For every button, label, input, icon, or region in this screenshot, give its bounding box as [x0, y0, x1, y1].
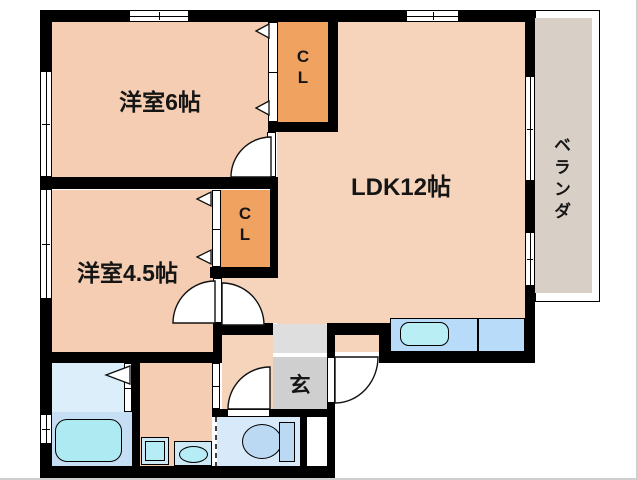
kitchen-sink	[400, 322, 449, 346]
entry-cabinet	[307, 417, 327, 466]
wall-room-divider	[40, 177, 278, 189]
window-west6	[40, 72, 52, 176]
window-veranda-north	[525, 77, 535, 180]
sliding-door-washroom	[212, 363, 220, 409]
corridor-floor	[222, 335, 273, 409]
wall-closet-top-bottom	[268, 122, 338, 132]
wall-toilet-stub	[217, 409, 227, 417]
washing-machine-pan-inner	[145, 441, 165, 461]
toilet-bowl	[242, 424, 282, 459]
door-toilet	[227, 409, 270, 417]
wall-bottom	[40, 466, 335, 478]
kitchen-counter-divider	[477, 319, 479, 351]
wall-left-1	[40, 10, 52, 72]
window-bathroom	[40, 415, 52, 443]
bathroom-floor	[52, 363, 125, 412]
wall-entry-right-upper	[327, 335, 335, 357]
window-top-east	[407, 10, 458, 22]
room-ldk-floor-top	[338, 22, 525, 132]
label-entrance: 玄	[273, 369, 327, 399]
wall-entry-right-lower	[327, 403, 335, 466]
vanity-sink-basin	[179, 446, 208, 463]
wall-toilet-band	[270, 409, 335, 417]
wall-right-1	[525, 10, 535, 77]
wall-hall-stub	[213, 335, 222, 352]
window-veranda-south	[525, 233, 535, 285]
label-ldk: LDK12帖	[277, 167, 525, 202]
label-western45: 洋室4.5帖	[40, 254, 215, 288]
wall-hall-left	[213, 323, 273, 335]
wall-washroom-top	[40, 352, 222, 363]
kitchen-counter	[390, 318, 525, 352]
bathtub	[55, 419, 122, 462]
wall-closet-mid-bottom	[210, 267, 278, 278]
vanity-sink	[174, 441, 212, 466]
wall-top-3	[458, 10, 535, 22]
wall-top-2	[188, 10, 407, 22]
wall-closet-top-right	[328, 10, 338, 132]
wall-top-1	[40, 10, 130, 22]
sliding-door-closet-top	[268, 22, 278, 122]
wall-kitchen-bottom	[379, 352, 535, 363]
door-entrance	[327, 357, 335, 403]
door-western6	[267, 132, 276, 177]
wall-right-2	[525, 180, 535, 233]
wall-toilet-right	[300, 417, 307, 466]
washing-machine-pan	[141, 437, 169, 465]
entrance-step	[273, 324, 327, 353]
window-top-west	[130, 10, 188, 22]
label-closet-top: CL	[295, 46, 311, 89]
toilet-tank	[279, 422, 295, 462]
wall-bath-divider	[132, 352, 140, 478]
hallway-floor	[222, 278, 278, 323]
label-western6: 洋室6帖	[52, 83, 268, 117]
label-closet-mid: CL	[237, 203, 253, 246]
sliding-door-bathroom	[124, 363, 132, 412]
floor-plan: 洋室6帖 LDK12帖 洋室4.5帖 CL CL 玄 ベランダ	[0, 0, 638, 480]
label-veranda: ベランダ	[548, 110, 573, 250]
door-arc-entrance	[335, 357, 378, 403]
